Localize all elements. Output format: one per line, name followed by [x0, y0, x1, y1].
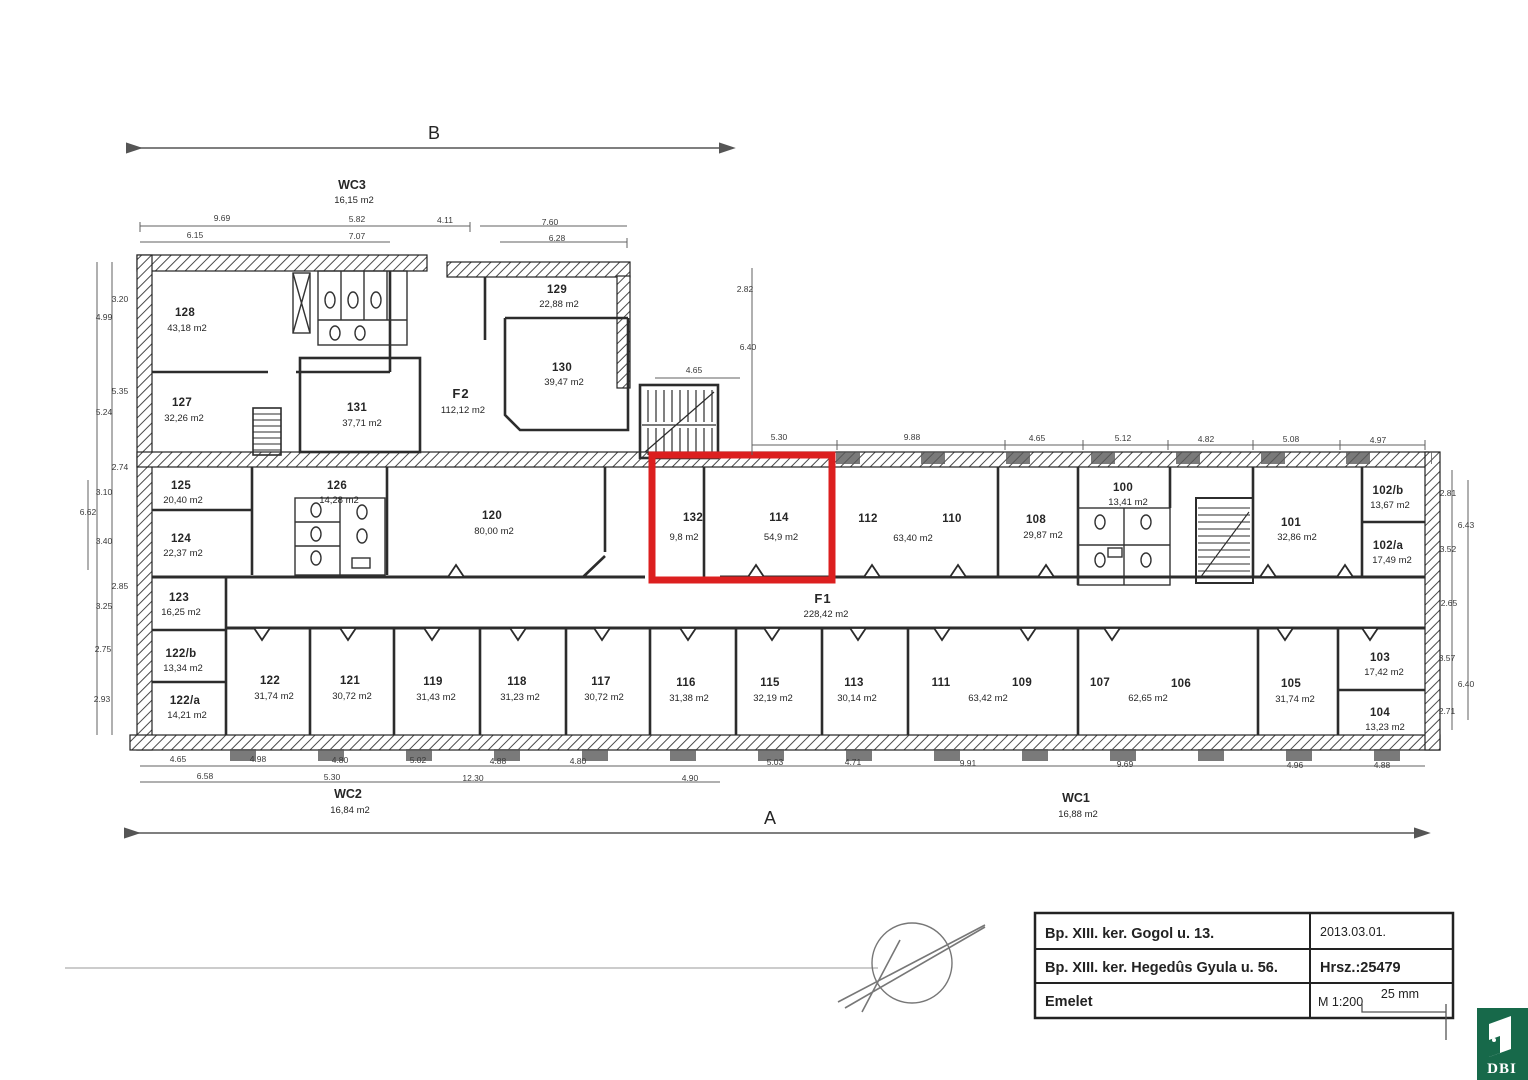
dim-label: 4.88 — [1374, 760, 1391, 770]
dim-label: 2.65 — [1441, 598, 1458, 608]
room-111-number: 111 — [932, 677, 951, 689]
stair-right — [1196, 498, 1253, 583]
room-117-number: 117 — [591, 676, 610, 688]
rooms-107-106-area: 62,65 m2 — [1128, 693, 1168, 704]
dim-label: 6.58 — [197, 771, 214, 781]
room-116-number: 116 — [676, 677, 695, 689]
room-122b-number: 122/b — [166, 648, 197, 660]
dim-label: 4.90 — [682, 773, 699, 783]
dim-label: 3.57 — [1439, 653, 1456, 663]
dim-label: 5.30 — [324, 772, 341, 782]
room-103-area: 17,42 m2 — [1364, 667, 1404, 678]
hall-f1-number: F1 — [814, 591, 831, 606]
dim-label: 9.69 — [1117, 759, 1134, 769]
room-124-area: 22,37 m2 — [163, 548, 203, 559]
room-114-number: 114 — [769, 512, 789, 524]
room-101-number: 101 — [1281, 517, 1301, 529]
dim-label: 4.65 — [170, 754, 187, 764]
scanned-floor-plan-sheet: 128 43,18 m2 127 32,26 m2 131 37,71 m2 F… — [0, 0, 1528, 1080]
dim-label: 5.12 — [1115, 433, 1132, 443]
dim-label: 4.65 — [686, 365, 703, 375]
room-108-area: 29,87 m2 — [1023, 530, 1063, 541]
wc3-label: WC3 — [338, 178, 366, 192]
room-127-area: 32,26 m2 — [164, 413, 204, 424]
left-outer-wall — [137, 255, 152, 750]
hall-f2-number: F2 — [452, 386, 469, 401]
dim-label: 9.88 — [904, 432, 921, 442]
axis-arrows: B A — [138, 123, 1428, 833]
dim-label: 6.40 — [740, 342, 757, 352]
wc-labels: WC3 16,15 m2 WC2 16,84 m2 WC1 16,88 m2 — [330, 178, 1098, 820]
room-126-number: 126 — [327, 480, 347, 492]
room-100-number: 100 — [1113, 482, 1133, 494]
dim-label: 2.93 — [94, 694, 111, 704]
room-130-number: 130 — [552, 362, 572, 374]
room-122a-area: 14,21 m2 — [167, 710, 207, 721]
floor-plan: 128 43,18 m2 127 32,26 m2 131 37,71 m2 F… — [0, 0, 1528, 1080]
dim-label: 2.82 — [737, 284, 754, 294]
room-113-number: 113 — [844, 677, 863, 689]
dim-label: 5.24 — [96, 407, 113, 417]
stamp-mark — [65, 923, 985, 1012]
room-124-number: 124 — [171, 533, 191, 545]
title-date: 2013.03.01. — [1320, 925, 1386, 939]
dim-label: 3.10 — [96, 487, 113, 497]
room-104-number: 104 — [1370, 707, 1390, 719]
dim-label: 5.35 — [112, 386, 129, 396]
title-floor-name: Emelet — [1045, 994, 1093, 1010]
title-scale: M 1:200 — [1318, 995, 1363, 1009]
room-122a-number: 122/a — [170, 695, 201, 707]
axis-label-a: A — [764, 808, 776, 828]
room-105-number: 105 — [1281, 678, 1301, 690]
dim-label: 3.25 — [96, 601, 113, 611]
dim-label: 2.74 — [112, 462, 129, 472]
dim-label: 4.96 — [1287, 760, 1304, 770]
dim-label: 2.75 — [95, 644, 112, 654]
stair-central — [640, 385, 718, 458]
title-block: Bp. XIII. ker. Gogol u. 13. 2013.03.01. … — [1035, 913, 1453, 1040]
room-132-area: 9,8 m2 — [669, 532, 698, 543]
room-128-number: 128 — [175, 307, 195, 319]
middle-left-toilet-block — [295, 498, 385, 575]
title-address-1: Bp. XIII. ker. Gogol u. 13. — [1045, 926, 1214, 942]
axis-label-b: B — [428, 123, 440, 143]
room-106-number: 106 — [1171, 678, 1191, 690]
wc2-label: WC2 — [334, 787, 362, 801]
room-105-area: 31,74 m2 — [1275, 694, 1315, 705]
room-131-number: 131 — [347, 402, 367, 414]
dim-label: 3.40 — [96, 536, 113, 546]
room-101-area: 32,86 m2 — [1277, 532, 1317, 543]
room-129-number: 129 — [547, 284, 567, 296]
room-123-area: 16,25 m2 — [161, 607, 201, 618]
dim-label: 4.99 — [96, 312, 113, 322]
room-120-number: 120 — [482, 510, 502, 522]
room-103-number: 103 — [1370, 652, 1390, 664]
room-114-area: 54,9 m2 — [764, 532, 798, 543]
dim-label: 4.11 — [437, 215, 453, 225]
room-100-area: 13,41 m2 — [1108, 497, 1148, 508]
room-132-number: 132 — [683, 512, 703, 524]
room-102b-area: 13,67 m2 — [1370, 500, 1410, 511]
room-107-number: 107 — [1090, 677, 1110, 689]
hall-f2-area: 112,12 m2 — [441, 405, 485, 416]
dim-label: 6.40 — [1458, 679, 1475, 689]
room-121-area: 30,72 m2 — [332, 691, 372, 702]
dim-label: 2.81 — [1440, 488, 1457, 498]
dim-label: 4.88 — [490, 756, 507, 766]
dim-label: 5.02 — [410, 755, 427, 765]
dim-label: 4.80 — [332, 755, 349, 765]
room-118-number: 118 — [507, 676, 527, 688]
dim-label: 6.62 — [80, 507, 97, 517]
highlight-rect-rooms-132-114 — [652, 455, 832, 580]
dim-label: 3.52 — [1440, 544, 1457, 554]
room-116-area: 31,38 m2 — [669, 693, 709, 704]
room-125-area: 20,40 m2 — [163, 495, 203, 506]
dim-label: 5.03 — [767, 757, 784, 767]
dim-label: 12.30 — [462, 773, 484, 783]
dim-label: 5.08 — [1283, 434, 1300, 444]
wc2-area: 16,84 m2 — [330, 805, 370, 816]
room-119-area: 31,43 m2 — [416, 692, 456, 703]
room-112-number: 112 — [858, 513, 877, 525]
rooms-112-110-area: 63,40 m2 — [893, 533, 933, 544]
room-122-number: 122 — [260, 675, 280, 687]
dbi-logo-text: DBI — [1487, 1061, 1517, 1077]
room-122b-area: 13,34 m2 — [163, 663, 203, 674]
room-120-area: 80,00 m2 — [474, 526, 514, 537]
dim-label: 6.28 — [549, 233, 566, 243]
room-126-area: 14,28 m2 — [319, 495, 359, 506]
room-115-area: 32,19 m2 — [753, 693, 793, 704]
bottom-outer-wall — [130, 735, 1440, 750]
dim-label: 7.07 — [349, 231, 366, 241]
room-123-number: 123 — [169, 592, 189, 604]
room-102a-number: 102/a — [1373, 540, 1404, 552]
dim-label: 5.82 — [349, 214, 366, 224]
upper-wing-top-wall-2 — [447, 262, 630, 277]
dim-label: 4.98 — [250, 754, 267, 764]
room-128-area: 43,18 m2 — [167, 323, 207, 334]
room-109-number: 109 — [1012, 677, 1032, 689]
dim-label: 4.71 — [845, 757, 862, 767]
room-125-number: 125 — [171, 480, 191, 492]
rooms-111-109-area: 63,42 m2 — [968, 693, 1008, 704]
stair-small-left — [253, 408, 281, 455]
room-115-number: 115 — [760, 677, 780, 689]
title-address-2: Bp. XIII. ker. Hegedûs Gyula u. 56. — [1045, 960, 1278, 976]
dim-label: 6.15 — [187, 230, 204, 240]
room-108-number: 108 — [1026, 514, 1046, 526]
room-110-number: 110 — [942, 513, 961, 525]
dim-label: 6.43 — [1458, 520, 1475, 530]
dim-label: 4.97 — [1370, 435, 1387, 445]
room-127-number: 127 — [172, 397, 192, 409]
room-102b-number: 102/b — [1373, 485, 1404, 497]
room-131-area: 37,71 m2 — [342, 418, 382, 429]
dim-label: 2.71 — [1439, 706, 1456, 716]
dbi-logo: DBI — [1477, 1008, 1528, 1080]
title-scale-bar-label: 25 mm — [1381, 987, 1419, 1001]
upper-wing-top-wall — [137, 255, 427, 271]
dim-label: 4.65 — [1029, 433, 1046, 443]
dim-label: 2.85 — [112, 581, 129, 591]
dim-label: 5.30 — [771, 432, 788, 442]
dim-label: 3.20 — [112, 294, 129, 304]
dim-label: 7.60 — [542, 217, 559, 227]
wc3-area: 16,15 m2 — [334, 195, 374, 206]
middle-right-toilet-block — [1078, 508, 1170, 585]
room-104-area: 13,23 m2 — [1365, 722, 1405, 733]
room-129-area: 22,88 m2 — [539, 299, 579, 310]
dim-label: 4.82 — [1198, 434, 1215, 444]
room-119-number: 119 — [423, 676, 442, 688]
dim-label: 9.69 — [214, 213, 231, 223]
room-122-area: 31,74 m2 — [254, 691, 294, 702]
room-118-area: 31,23 m2 — [500, 692, 540, 703]
room-121-number: 121 — [340, 675, 360, 687]
hall-f1-area: 228,42 m2 — [804, 609, 849, 620]
wc1-area: 16,88 m2 — [1058, 809, 1098, 820]
dim-label: 4.80 — [570, 756, 587, 766]
dim-label: 9.91 — [960, 758, 977, 768]
room-130-area: 39,47 m2 — [544, 377, 584, 388]
room-113-area: 30,14 m2 — [837, 693, 877, 704]
room-102a-area: 17,49 m2 — [1372, 555, 1412, 566]
room-117-area: 30,72 m2 — [584, 692, 624, 703]
wc1-label: WC1 — [1062, 791, 1090, 805]
title-parcel-number: Hrsz.:25479 — [1320, 960, 1401, 976]
